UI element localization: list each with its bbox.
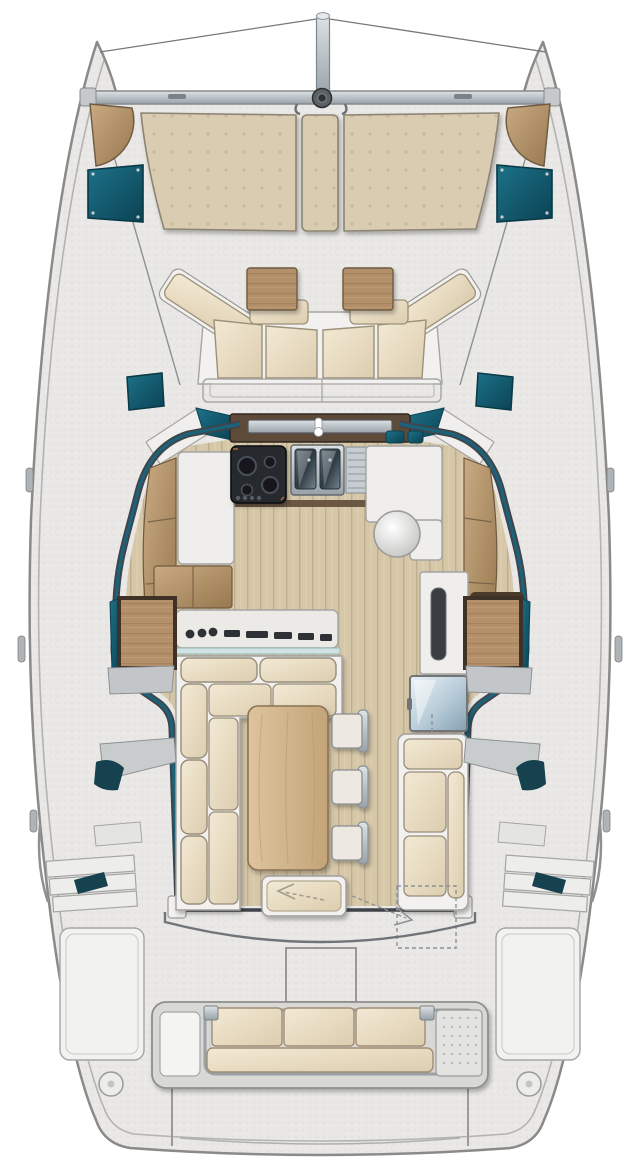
cabinet-port xyxy=(178,452,234,564)
moulded-step-starboard xyxy=(498,822,546,846)
deck-plate-port xyxy=(127,373,164,410)
chair-2 xyxy=(332,766,368,808)
double-sink xyxy=(291,445,344,495)
trampoline-starboard xyxy=(497,165,552,222)
rigging xyxy=(80,13,560,114)
hull-companionway-starboard xyxy=(465,598,530,672)
refrigerator xyxy=(407,676,467,731)
bench-back-cushion-3 xyxy=(356,1008,425,1046)
beam-end-port xyxy=(80,88,96,106)
counter-starboard xyxy=(366,446,442,560)
quarter-panel-port xyxy=(60,928,144,1060)
round-basin xyxy=(374,511,420,557)
nav-station xyxy=(176,610,340,654)
bench-back-cushion-1 xyxy=(212,1008,282,1046)
seat-cushion-1 xyxy=(214,320,262,378)
chair-3 xyxy=(332,822,368,864)
glass-ledge xyxy=(176,648,340,654)
moulded-step-port xyxy=(94,822,142,846)
chaise-bench xyxy=(398,734,468,910)
sunpad-center xyxy=(302,115,338,231)
moulded-seat-starboard xyxy=(466,666,532,694)
moulded-seat-port xyxy=(108,666,174,694)
seat-cushion-3 xyxy=(323,326,374,378)
pole-top xyxy=(317,13,330,20)
tall-cabinet-with-slot xyxy=(420,572,468,674)
cocktail-table-port xyxy=(247,268,297,310)
seat-cushion-2 xyxy=(266,326,317,378)
dining-table xyxy=(248,706,328,870)
stove-two-burner xyxy=(231,446,286,503)
quarter-panel-starboard xyxy=(496,928,580,1060)
beam-clamp-starboard xyxy=(454,94,472,99)
deck-plan-image xyxy=(0,0,640,1162)
bowsprit-pole xyxy=(317,14,330,98)
beam-center-fitting-core xyxy=(318,94,326,102)
chair-1 xyxy=(332,710,368,752)
bench-corner-fitting-port xyxy=(204,1006,218,1020)
bench-white-panel xyxy=(160,1012,200,1076)
deck-hatch-port xyxy=(99,1072,123,1096)
beam-clamp-port xyxy=(168,94,186,99)
seat-cushion-4 xyxy=(378,320,426,378)
bench-corner-fitting-starboard xyxy=(420,1006,434,1020)
drainboard xyxy=(346,447,368,493)
bench-seat-cushion xyxy=(207,1048,433,1072)
bench-back-cushion-2 xyxy=(284,1008,354,1046)
trampoline-port xyxy=(88,165,143,222)
sunpad-starboard xyxy=(344,113,499,231)
saloon xyxy=(176,656,474,948)
deck-plate-starboard xyxy=(476,373,513,410)
forestay-wire-starboard xyxy=(323,18,546,52)
faucet xyxy=(314,418,323,437)
beam-end-starboard xyxy=(544,88,560,106)
aft-bench xyxy=(152,1002,488,1088)
deck-hatch-starboard xyxy=(517,1072,541,1096)
footstool-with-arrow xyxy=(262,876,346,916)
hull-companionway-port xyxy=(110,598,175,672)
dining-chairs xyxy=(332,710,368,864)
cocktail-table-starboard xyxy=(343,268,393,310)
sunpad-port xyxy=(141,113,296,231)
liferaft-grid-panel xyxy=(436,1010,482,1076)
forestay-wire-port xyxy=(100,18,323,52)
